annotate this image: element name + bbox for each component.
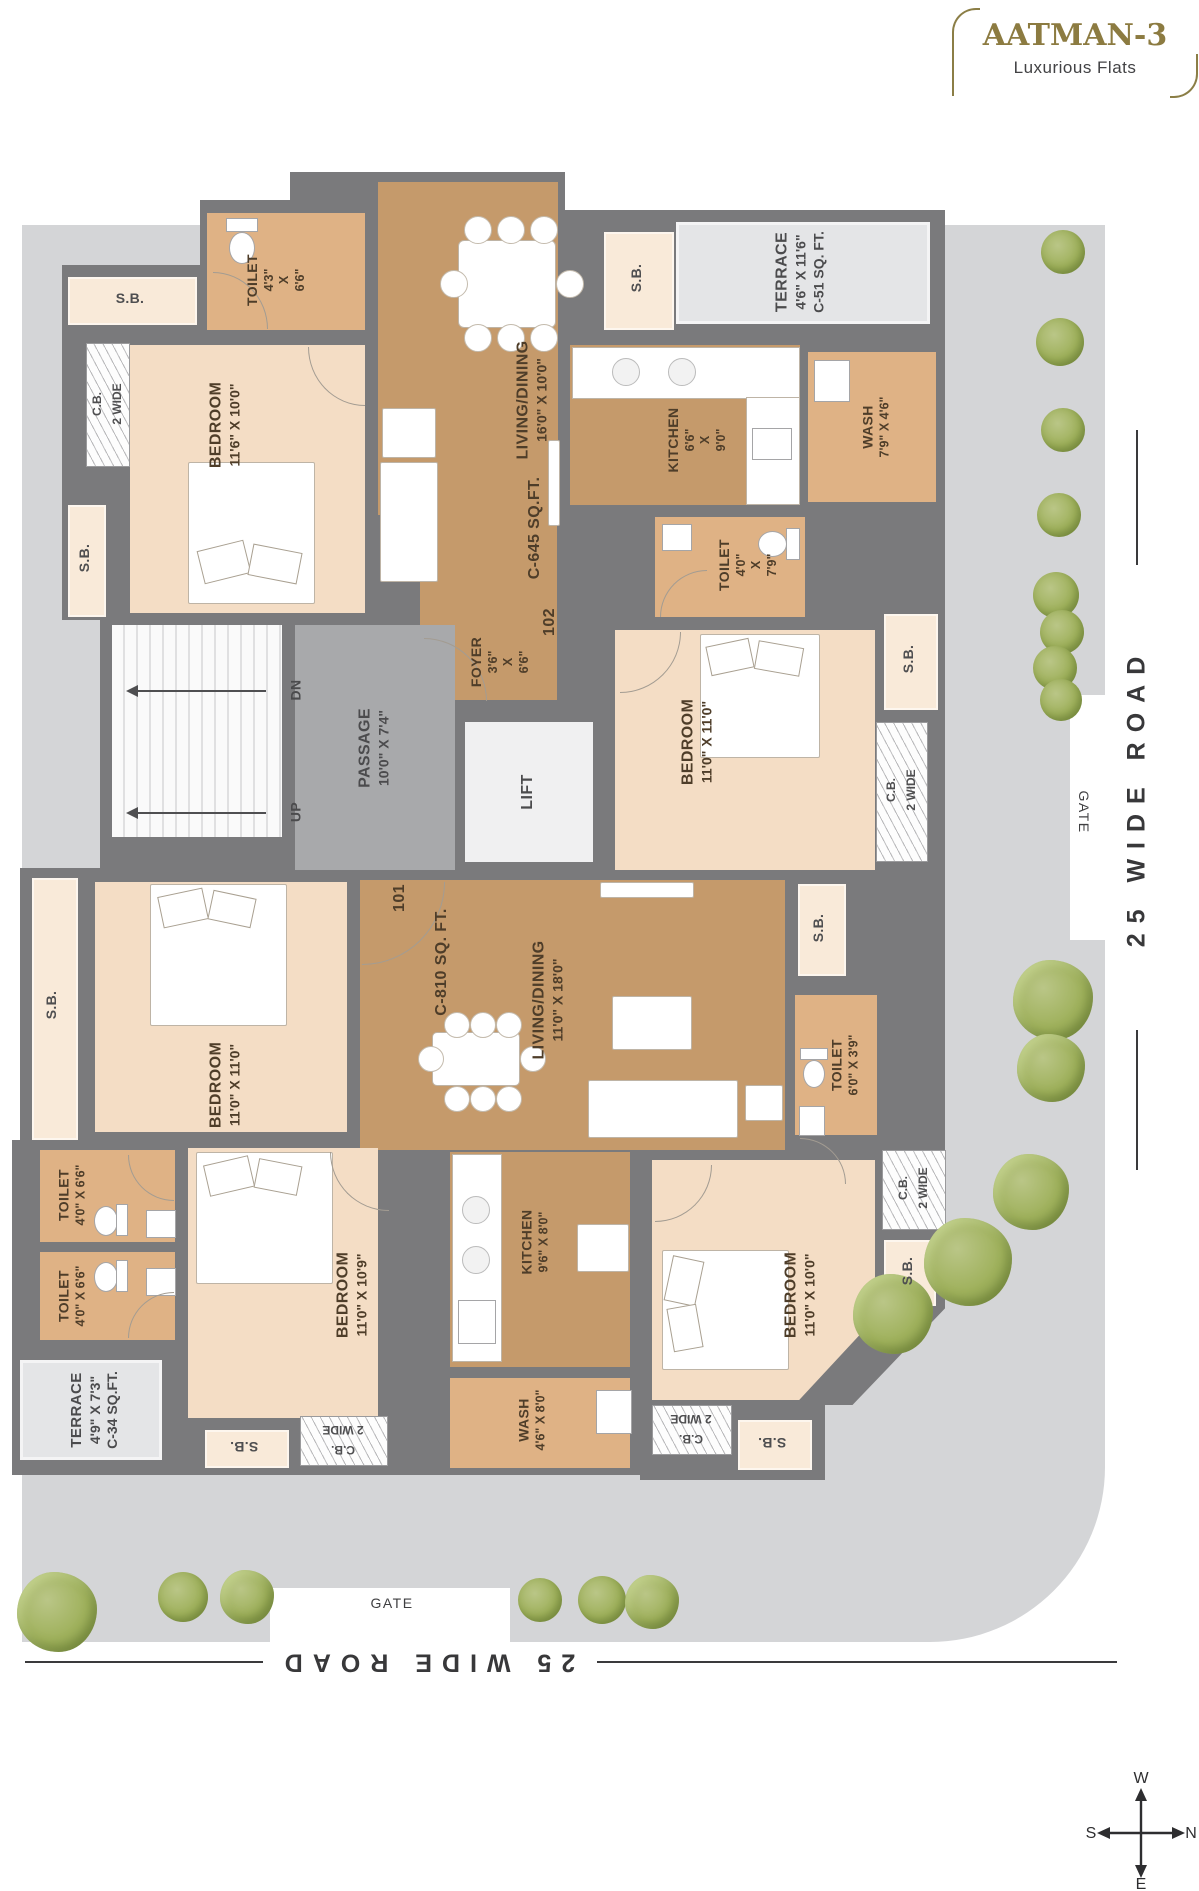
gate-label-right: GATE: [1076, 790, 1092, 833]
armchair: [382, 408, 436, 458]
toilet-sink: [799, 1106, 825, 1136]
chair: [464, 216, 492, 244]
unit-area-102: C-645 SQ.FT.: [525, 477, 545, 580]
toilet-wc: [803, 1060, 825, 1088]
label-sb: S.B.: [116, 289, 144, 309]
washing-machine: [814, 360, 850, 402]
chair: [418, 1046, 444, 1072]
toilet-wc: [94, 1206, 118, 1236]
hob-burner-icon: [462, 1196, 490, 1224]
tree-icon: [1037, 493, 1081, 537]
label-cb: C.B. 2 WIDE: [322, 1420, 363, 1460]
tree-icon: [993, 1154, 1069, 1230]
label-up: UP: [287, 802, 305, 822]
svg-text:S: S: [1086, 1825, 1097, 1842]
project-logo: AATMAN-3 Luxurious Flats: [952, 6, 1198, 106]
kitchen-sink: [752, 428, 792, 460]
tree-icon: [1041, 230, 1085, 274]
label-sb: S.B.: [898, 1257, 918, 1285]
road-label-right: 25 WIDE ROAD: [1123, 647, 1152, 948]
label-cb: C.B. 2 WIDE: [881, 769, 921, 810]
wash-sink: [596, 1390, 632, 1434]
tree-icon: [853, 1274, 933, 1354]
label-cb: C.B. 2 WIDE: [893, 1167, 933, 1208]
unit-number-101: 101: [390, 884, 410, 912]
dining-table: [458, 240, 556, 328]
stairs-dn-arrowhead: [126, 685, 138, 697]
label-sb: S.B.: [627, 264, 647, 292]
gate-label-bottom: GATE: [370, 1595, 413, 1611]
room-label-living-101: LIVING/DINING11'0" X 18'0": [529, 941, 567, 1060]
room-label-bedroom-101b: BEDROOM11'0" X 10'9": [333, 1252, 371, 1338]
hob-burner-icon: [612, 358, 640, 386]
side-table: [745, 1085, 783, 1121]
chair: [470, 1012, 496, 1038]
project-name: AATMAN-3: [960, 18, 1190, 53]
chair: [464, 324, 492, 352]
tree-icon: [625, 1575, 679, 1629]
toilet-sink: [146, 1210, 176, 1238]
toilet-tank: [800, 1048, 828, 1060]
road-line-right-lower: [1136, 1030, 1138, 1170]
chair: [496, 1086, 522, 1112]
sofa: [380, 462, 438, 582]
label-cb: C.B. 2 WIDE: [670, 1409, 711, 1449]
tree-icon: [17, 1572, 97, 1652]
room-label-passage: PASSAGE10'0" X 7'4": [355, 708, 393, 788]
chair: [444, 1086, 470, 1112]
dining-table: [432, 1032, 520, 1086]
room-label-bedroom-102a: BEDROOM11'6" X 10'0": [206, 382, 244, 468]
chair: [530, 216, 558, 244]
svg-text:E: E: [1136, 1876, 1147, 1890]
unit-number-102: 102: [540, 608, 560, 636]
label-sb: S.B.: [230, 1436, 258, 1456]
label-cb: C.B. 2 WIDE: [87, 383, 127, 424]
chair: [496, 1012, 522, 1038]
svg-text:N: N: [1185, 1825, 1197, 1842]
chair: [497, 216, 525, 244]
hob-burner-icon: [462, 1246, 490, 1274]
label-sb: S.B.: [809, 914, 829, 942]
label-dn: DN: [287, 679, 305, 700]
room-label-wash-101: WASH4'6" X 8'0": [515, 1390, 548, 1451]
label-sb: S.B.: [42, 991, 62, 1019]
toilet-sink: [662, 524, 692, 551]
room-label-terrace-102: TERRACE 4'6" X 11'6" C-51 SQ. FT.: [773, 231, 828, 313]
room-label-terrace-101: TERRACE 4'9" X 7'3" C-34 SQ.FT.: [68, 1371, 122, 1449]
tree-icon: [518, 1578, 562, 1622]
tree-icon: [1013, 960, 1093, 1040]
label-sb: S.B.: [758, 1432, 786, 1452]
compass-icon: W E S N: [1085, 1770, 1197, 1890]
fridge: [577, 1224, 629, 1272]
room-label-toilet-102b: TOILET4'0" X 7'9": [716, 539, 780, 591]
toilet-tank: [786, 528, 800, 560]
tree-icon: [1017, 1034, 1085, 1102]
tree-icon: [158, 1572, 208, 1622]
project-tagline: Luxurious Flats: [960, 58, 1190, 78]
room-label-bedroom-101c: BEDROOM11'0" X 10'0": [781, 1252, 819, 1338]
road-label-bottom: 25 WIDE ROAD: [275, 1648, 576, 1677]
tv-unit: [600, 882, 694, 898]
tree-icon: [1040, 679, 1082, 721]
tree-icon: [924, 1218, 1012, 1306]
room-label-bedroom-101a: BEDROOM11'0" X 11'0": [206, 1042, 244, 1128]
tree-icon: [1041, 408, 1085, 452]
chair: [444, 1012, 470, 1038]
room-label-living-102: LIVING/DINING16'0" X 10'0": [513, 341, 551, 460]
stairs-up-arrowhead: [126, 807, 138, 819]
stairs-up-arrow-line: [138, 812, 266, 814]
road-line-bottom-left: [25, 1661, 263, 1663]
toilet-wc: [94, 1262, 118, 1292]
stairs-dn-arrow-line: [138, 690, 266, 692]
label-sb: S.B.: [75, 544, 95, 572]
room-label-toilet-101b: TOILET4'0" X 6'6": [55, 1266, 88, 1327]
room-label-toilet-102a: TOILET4'3" X 6'6": [244, 254, 308, 306]
chair: [556, 270, 584, 298]
tree-icon: [220, 1570, 274, 1624]
sofa: [588, 1080, 738, 1138]
tree-icon: [578, 1576, 626, 1624]
toilet-tank: [116, 1204, 128, 1236]
chair: [440, 270, 468, 298]
room-label-kitchen-101: KITCHEN9'6" X 8'0": [518, 1209, 551, 1274]
room-label-toilet-101c: TOILET6'0" X 3'9": [828, 1035, 861, 1096]
road-line-right-upper: [1136, 430, 1138, 565]
chair: [470, 1086, 496, 1112]
road-line-bottom-right: [597, 1661, 1117, 1663]
room-label-kitchen-102: KITCHEN6'6" X 9'0": [665, 407, 729, 472]
toilet-tank: [226, 218, 258, 232]
room-label-lift: LIFT: [518, 774, 538, 809]
room-label-bedroom-102b: BEDROOM11'0" X 11'0": [678, 699, 716, 785]
hob-burner-icon: [668, 358, 696, 386]
room-label-foyer-102: FOYER3'6" X 6'6": [468, 637, 532, 687]
stairwell: [112, 625, 282, 837]
unit-area-101: C-810 SQ. FT.: [432, 908, 452, 1015]
room-label-wash-102: WASH7'9" X 4'6": [859, 397, 892, 458]
svg-text:W: W: [1133, 1770, 1149, 1787]
tree-icon: [1036, 318, 1084, 366]
toilet-tank: [116, 1260, 128, 1292]
kitchen-sink: [458, 1300, 496, 1344]
floor-plan-canvas: 25 WIDE ROAD 25 WIDE ROAD GATE GATE: [0, 0, 1199, 1891]
armchair: [612, 996, 692, 1050]
label-sb: S.B.: [899, 645, 919, 673]
room-label-toilet-101a: TOILET4'0" X 6'6": [55, 1165, 88, 1226]
